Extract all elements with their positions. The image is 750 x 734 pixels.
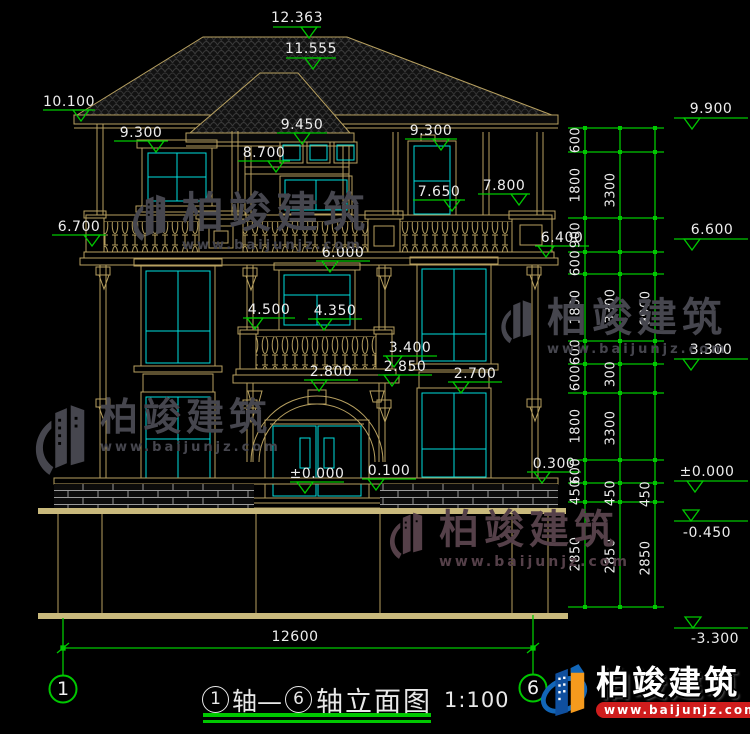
building-outline	[38, 37, 568, 619]
house-elevation-drawing	[0, 0, 750, 734]
brand-name: 柏竣建筑	[596, 666, 750, 699]
title-axis-end-circle: 6	[285, 686, 312, 713]
brand-logo-icon	[540, 659, 590, 725]
axis-bubble-1-label: 1	[57, 678, 69, 700]
cad-elevation-screenshot: 12.36311.55510.1009.3009.4508.7009.3007.…	[0, 0, 750, 734]
drawing-title: 1 轴— 6 轴立面图 1:100	[202, 680, 510, 719]
title-drawing-name: 轴立面图	[316, 680, 432, 719]
title-axis-start-circle: 1	[202, 686, 229, 713]
title-axis-word: 轴—	[232, 682, 282, 718]
brand-footer: 柏竣建筑 www.baijunjz.com	[540, 659, 750, 725]
axis-bubble-6-label: 6	[527, 677, 539, 699]
title-underline-2	[203, 720, 431, 723]
brand-url-banner: www.baijunjz.com	[596, 702, 750, 718]
title-scale: 1:100	[444, 688, 510, 712]
